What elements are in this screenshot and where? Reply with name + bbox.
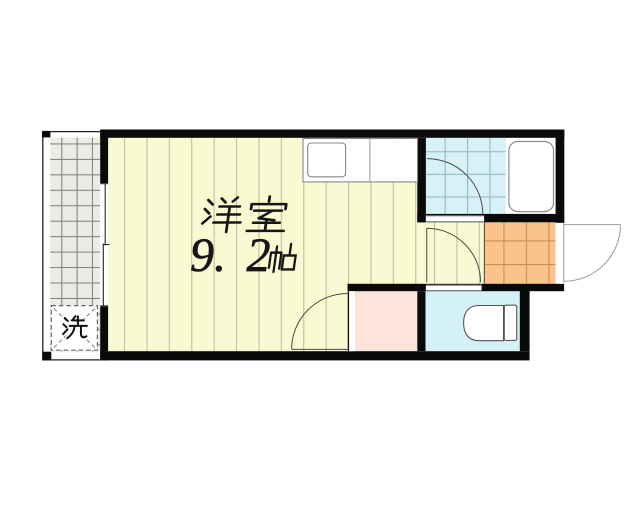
- svg-text:2: 2: [247, 229, 271, 282]
- svg-text:9.: 9.: [190, 229, 226, 282]
